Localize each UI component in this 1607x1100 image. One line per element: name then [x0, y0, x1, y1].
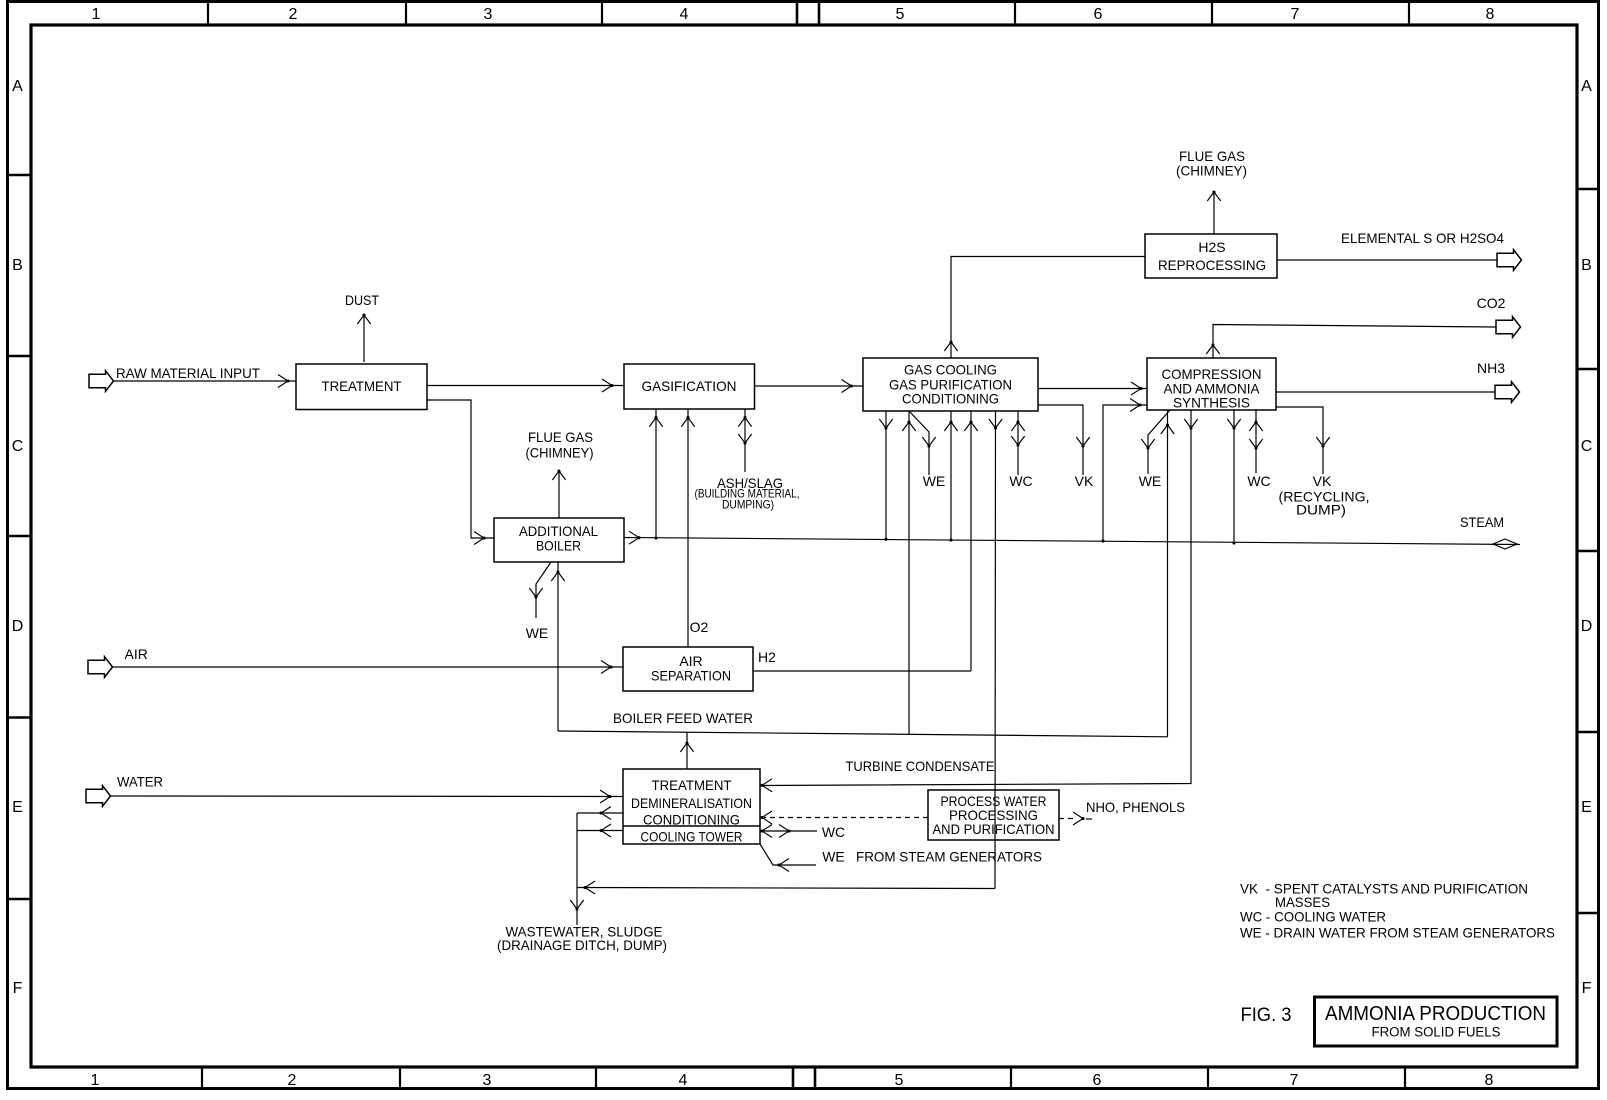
svg-text:CO2: CO2	[1477, 295, 1506, 311]
svg-text:DUMPING): DUMPING)	[722, 498, 774, 512]
svg-text:STEAM: STEAM	[1460, 514, 1504, 530]
svg-text:FROM STEAM GENERATORS: FROM STEAM GENERATORS	[856, 849, 1042, 865]
svg-text:WATER: WATER	[117, 774, 163, 790]
svg-text:8: 8	[1485, 1072, 1494, 1089]
svg-text:DUMP): DUMP)	[1296, 502, 1346, 518]
svg-text:WE: WE	[1139, 473, 1162, 489]
svg-text:WC: WC	[1247, 473, 1270, 489]
svg-text:A: A	[1581, 78, 1592, 95]
svg-text:A: A	[12, 78, 23, 95]
svg-text:BOILER FEED WATER: BOILER FEED WATER	[613, 710, 753, 726]
svg-text:WE: WE	[526, 625, 549, 641]
svg-text:CONDITIONING: CONDITIONING	[902, 390, 999, 406]
svg-text:VK: VK	[1075, 473, 1094, 489]
svg-text:DEMINERALISATION: DEMINERALISATION	[631, 795, 752, 811]
svg-text:ELEMENTAL S OR H2SO4: ELEMENTAL S OR H2SO4	[1341, 230, 1504, 246]
svg-text:C: C	[12, 438, 24, 455]
svg-text:H2S: H2S	[1198, 239, 1225, 255]
svg-text:FLUE GAS: FLUE GAS	[528, 429, 593, 445]
svg-text:WE - DRAIN WATER FROM STEAM GE: WE - DRAIN WATER FROM STEAM GENERATORS	[1240, 925, 1555, 941]
svg-text:GAS COOLING: GAS COOLING	[904, 361, 997, 377]
svg-text:BOILER: BOILER	[536, 538, 581, 554]
svg-text:8: 8	[1486, 6, 1495, 23]
svg-text:4: 4	[680, 6, 689, 23]
svg-text:2: 2	[289, 6, 298, 23]
svg-text:NHO, PHENOLS: NHO, PHENOLS	[1086, 799, 1185, 815]
svg-text:GASIFICATION: GASIFICATION	[642, 378, 737, 394]
svg-text:6: 6	[1094, 6, 1103, 23]
svg-text:DUST: DUST	[345, 292, 379, 308]
svg-text:1: 1	[92, 6, 101, 23]
svg-text:3: 3	[483, 1072, 492, 1089]
svg-text:AND PURIFICATION: AND PURIFICATION	[933, 821, 1055, 837]
svg-text:F: F	[1582, 980, 1592, 997]
svg-text:B: B	[12, 257, 23, 274]
svg-text:B: B	[1581, 257, 1592, 274]
svg-text:VK: VK	[1313, 473, 1332, 489]
svg-text:WC: WC	[822, 824, 845, 840]
svg-text:REPROCESSING: REPROCESSING	[1158, 257, 1266, 273]
svg-text:WE: WE	[923, 473, 946, 489]
svg-text:CONDITIONING: CONDITIONING	[643, 812, 740, 828]
svg-text:E: E	[1581, 799, 1592, 816]
svg-text:4: 4	[679, 1072, 688, 1089]
svg-text:FROM SOLID FUELS: FROM SOLID FUELS	[1372, 1025, 1501, 1040]
svg-text:C: C	[1581, 438, 1593, 455]
svg-text:1: 1	[91, 1072, 100, 1089]
svg-text:TREATMENT: TREATMENT	[652, 777, 732, 793]
svg-text:WC: WC	[1009, 473, 1032, 489]
svg-text:(CHIMNEY): (CHIMNEY)	[526, 445, 594, 461]
svg-text:(DRAINAGE DITCH, DUMP): (DRAINAGE DITCH, DUMP)	[497, 937, 667, 953]
svg-text:AMMONIA PRODUCTION: AMMONIA PRODUCTION	[1325, 1003, 1546, 1025]
svg-text:5: 5	[896, 6, 905, 23]
svg-text:2: 2	[288, 1072, 297, 1089]
svg-text:COOLING TOWER: COOLING TOWER	[641, 829, 743, 845]
svg-text:SEPARATION: SEPARATION	[651, 668, 731, 684]
svg-text:WE: WE	[822, 849, 845, 865]
svg-text:D: D	[1581, 618, 1593, 635]
svg-text:H2: H2	[758, 649, 776, 665]
svg-text:O2: O2	[690, 619, 709, 635]
svg-text:WC - COOLING WATER: WC - COOLING WATER	[1240, 909, 1386, 925]
svg-text:D: D	[12, 618, 24, 635]
svg-text:F: F	[13, 980, 23, 997]
svg-text:RAW MATERIAL INPUT: RAW MATERIAL INPUT	[116, 365, 260, 381]
svg-text:FIG. 3: FIG. 3	[1241, 1004, 1292, 1026]
svg-text:5: 5	[895, 1072, 904, 1089]
svg-text:7: 7	[1291, 6, 1300, 23]
svg-text:TREATMENT: TREATMENT	[322, 378, 402, 394]
svg-text:7: 7	[1290, 1072, 1299, 1089]
svg-text:SYNTHESIS: SYNTHESIS	[1173, 394, 1250, 410]
svg-text:6: 6	[1093, 1072, 1102, 1089]
svg-text:(CHIMNEY): (CHIMNEY)	[1176, 163, 1247, 179]
svg-text:E: E	[12, 799, 23, 816]
svg-text:3: 3	[484, 6, 493, 23]
svg-text:TURBINE CONDENSATE: TURBINE CONDENSATE	[846, 758, 995, 774]
svg-text:AIR: AIR	[125, 646, 148, 662]
svg-text:NH3: NH3	[1477, 360, 1505, 376]
